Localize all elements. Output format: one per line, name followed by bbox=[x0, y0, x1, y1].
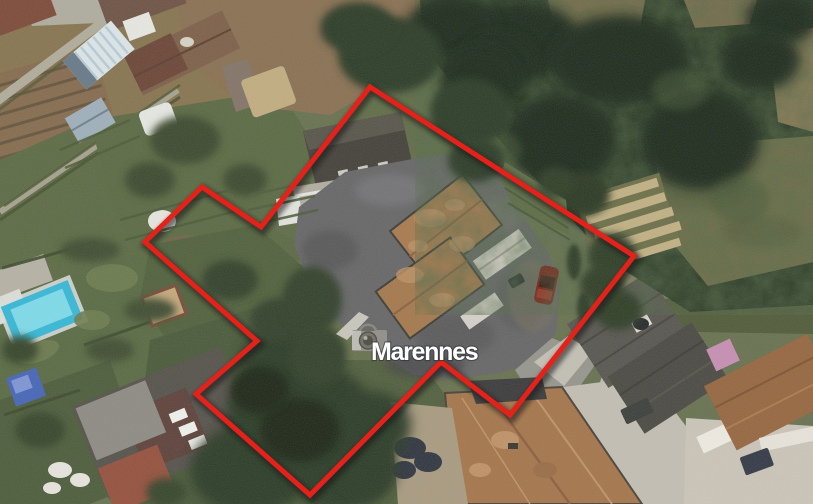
svg-text:Marennes: Marennes bbox=[371, 338, 478, 366]
